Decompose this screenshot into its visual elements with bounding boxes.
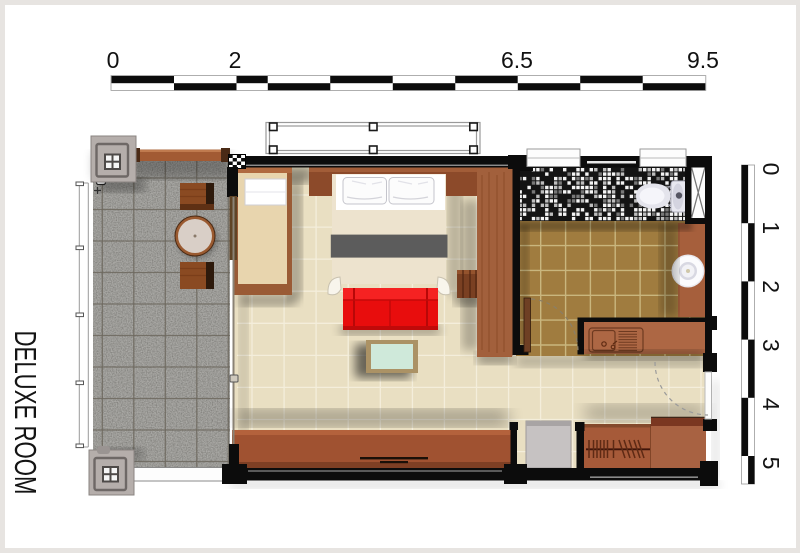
svg-text:3: 3: [758, 339, 784, 352]
svg-text:0: 0: [107, 47, 120, 73]
svg-text:4: 4: [758, 398, 784, 411]
svg-text:6.5: 6.5: [501, 47, 533, 73]
svg-text:0: 0: [758, 163, 784, 176]
svg-text:5: 5: [758, 457, 784, 470]
svg-text:1: 1: [758, 221, 784, 234]
svg-text:9.5: 9.5: [687, 47, 719, 73]
svg-text:DELUXE ROOM: DELUXE ROOM: [8, 331, 43, 495]
svg-text:2: 2: [229, 47, 242, 73]
svg-text:2: 2: [758, 280, 784, 293]
